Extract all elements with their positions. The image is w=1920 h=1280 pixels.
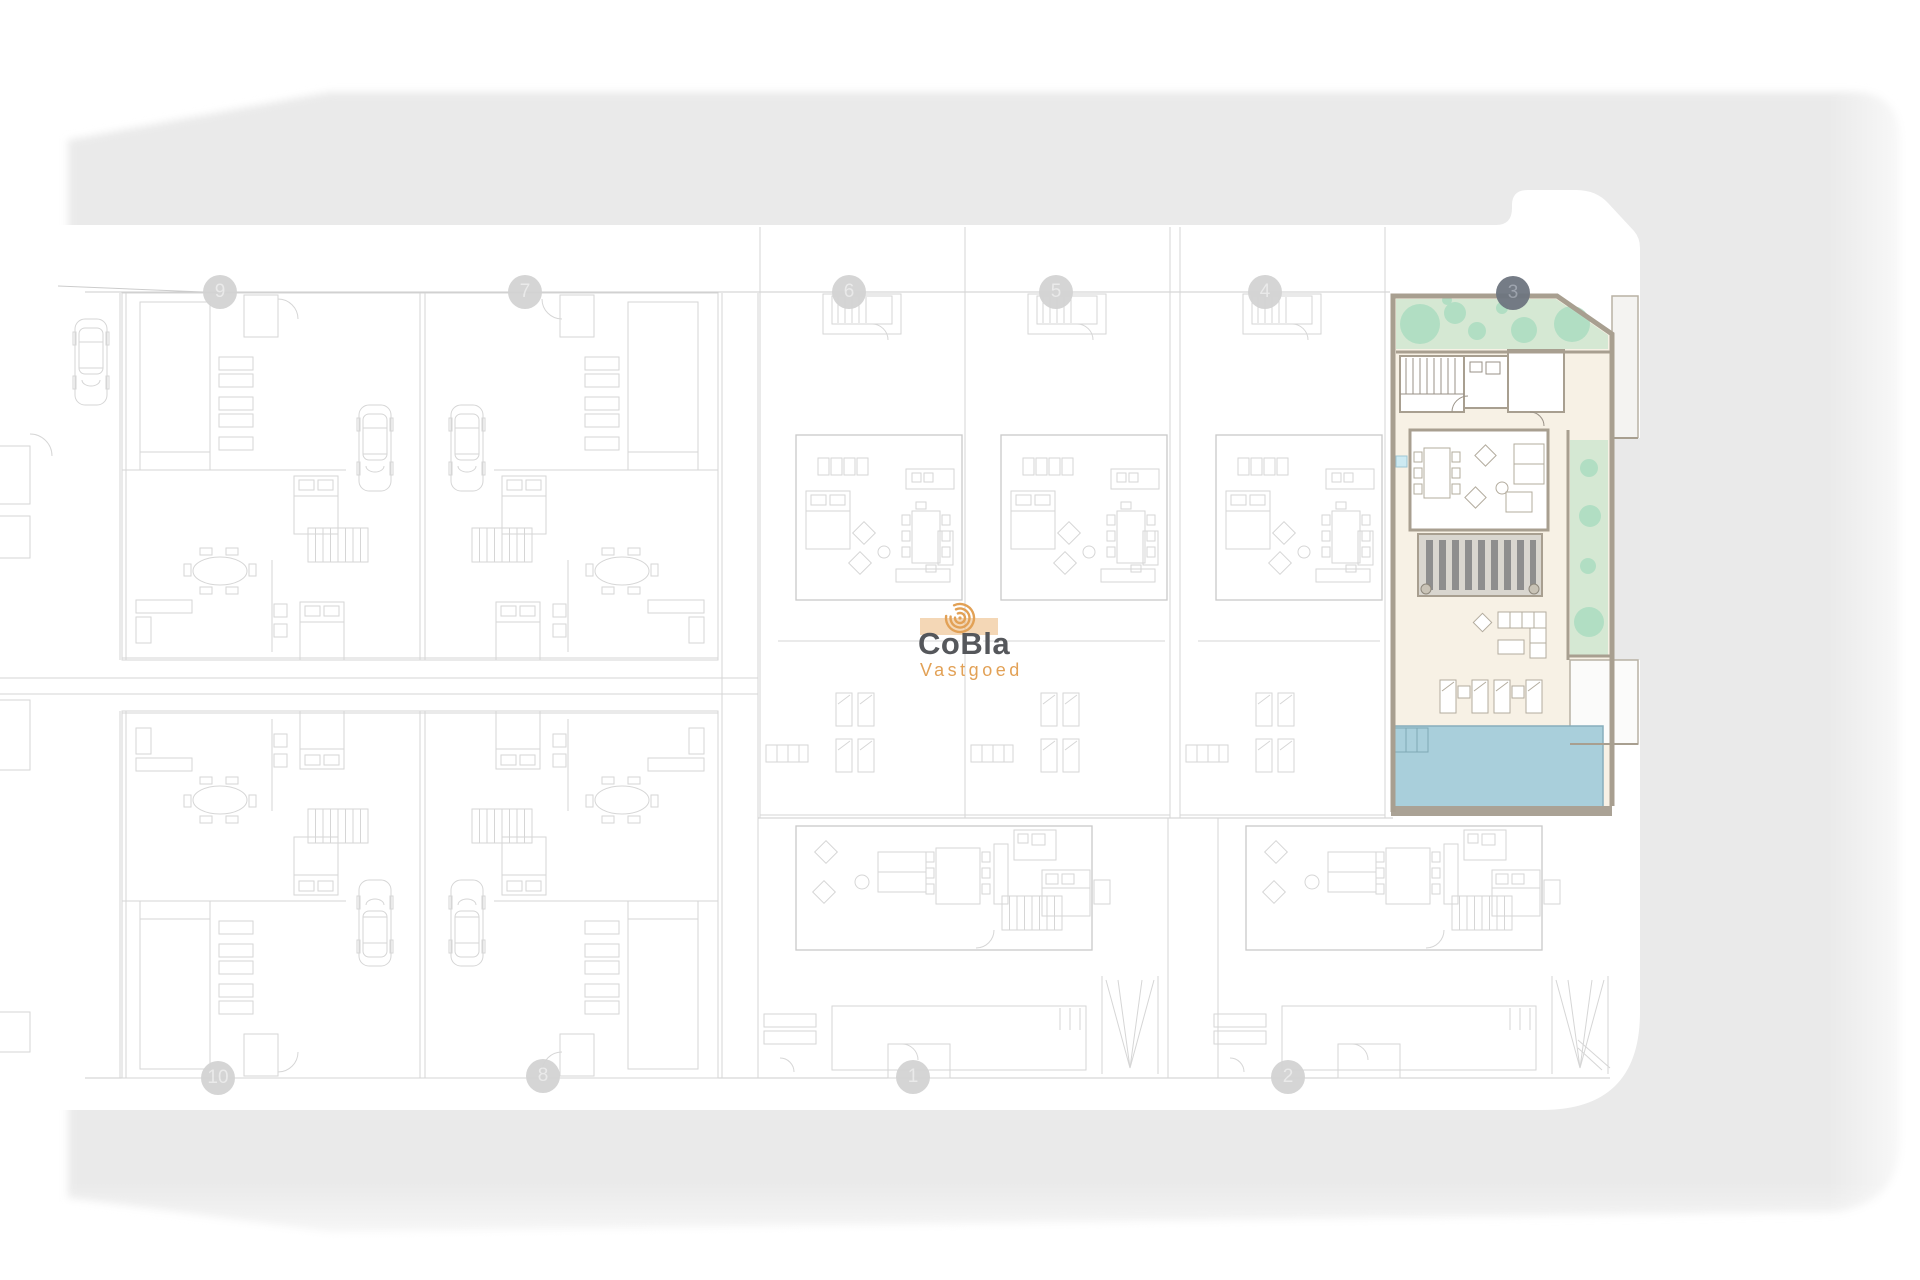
plot-marker-4[interactable]: 4 — [1248, 275, 1282, 309]
site-plan: 9 7 6 5 4 3 10 8 1 2 CoBla Vastgoed — [0, 0, 1920, 1280]
plot-marker-8[interactable]: 8 — [526, 1059, 560, 1093]
selected-plot-3[interactable] — [1390, 288, 1642, 818]
logo-tagline-text: Vastgoed — [920, 660, 1023, 681]
plot-marker-10[interactable]: 10 — [201, 1061, 235, 1095]
plot-marker-1[interactable]: 1 — [896, 1060, 930, 1094]
plot-marker-6[interactable]: 6 — [832, 275, 866, 309]
logo-brand-text: CoBla — [918, 626, 1010, 662]
cobla-logo: CoBla Vastgoed — [916, 596, 1046, 684]
plot-marker-5[interactable]: 5 — [1039, 275, 1073, 309]
plot-marker-7[interactable]: 7 — [508, 275, 542, 309]
plot-marker-2[interactable]: 2 — [1271, 1060, 1305, 1094]
plot-marker-9[interactable]: 9 — [203, 275, 237, 309]
